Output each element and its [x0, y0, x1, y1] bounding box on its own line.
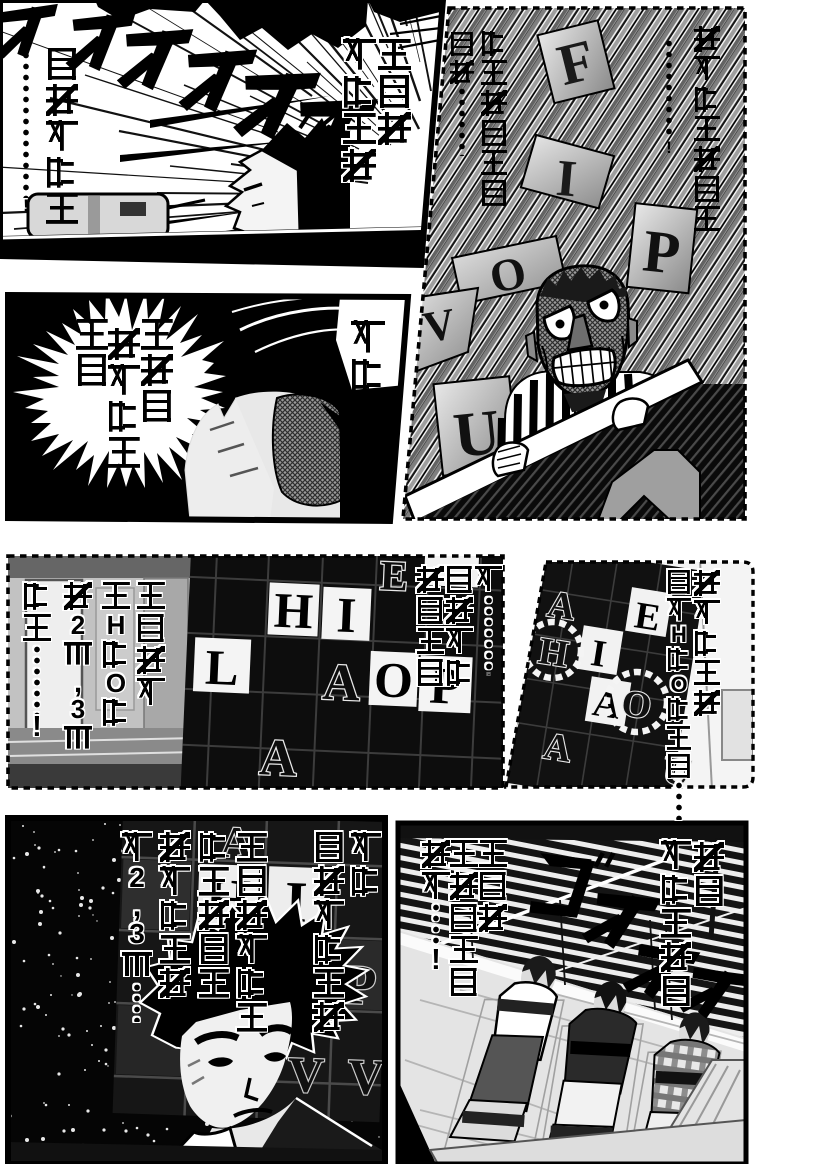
svg-text:O: O [373, 651, 414, 709]
svg-text:I: I [335, 586, 357, 643]
svg-text:V: V [287, 1046, 325, 1103]
svg-text:A: A [321, 654, 361, 713]
svg-text:P: P [640, 217, 683, 286]
svg-text:L: L [204, 639, 240, 696]
svg-text:A: A [258, 729, 298, 788]
svg-text:H: H [273, 582, 314, 640]
svg-text:V: V [347, 1048, 385, 1105]
svg-text:E: E [379, 553, 409, 600]
